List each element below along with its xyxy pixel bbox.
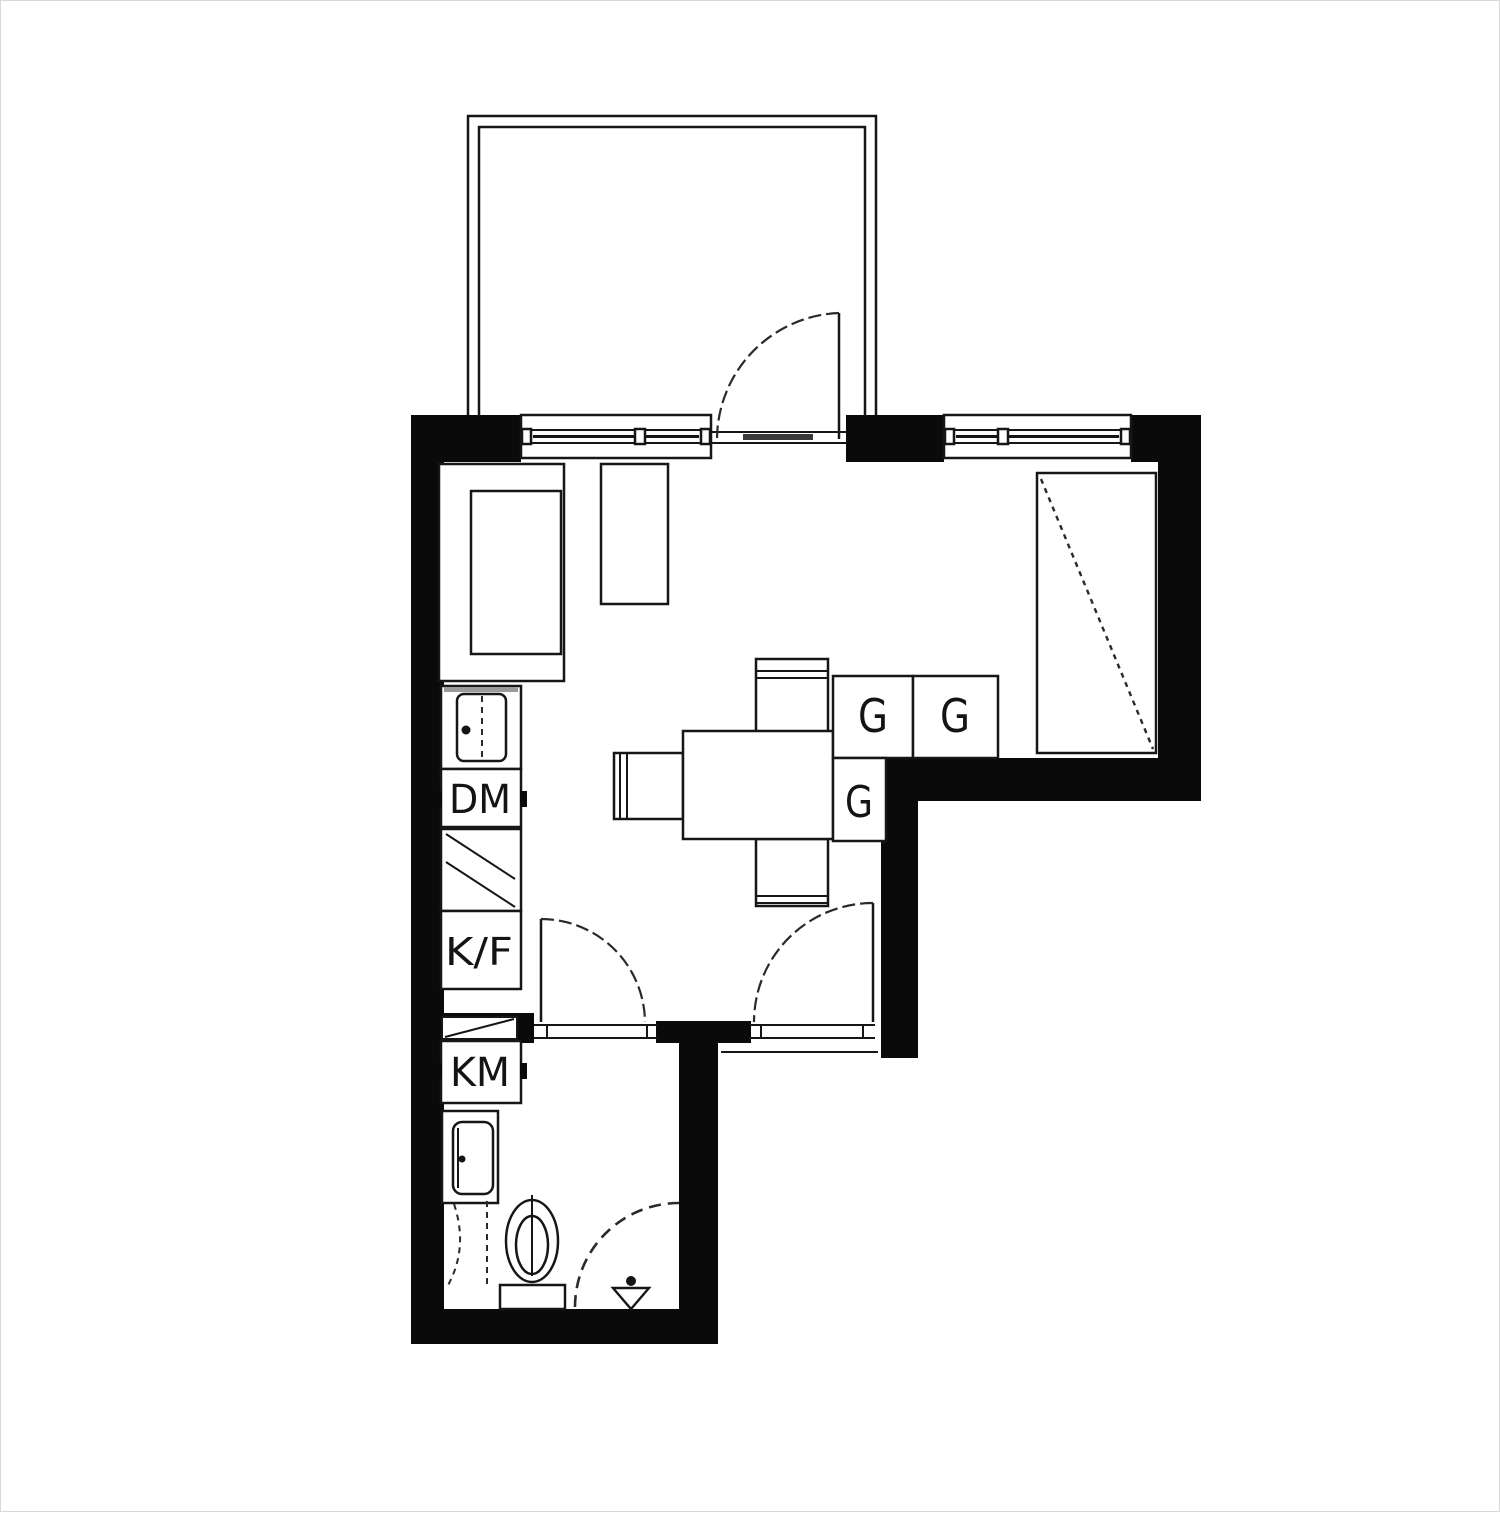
desk xyxy=(601,464,668,604)
clearance-arc xyxy=(447,1204,460,1287)
wall-bedroom-bottom xyxy=(881,758,1201,801)
bed xyxy=(1037,473,1156,753)
washing-machine-tab-left xyxy=(435,1063,442,1079)
wardrobe-g3-label: G xyxy=(845,777,873,828)
wardrobe-g1-label: G xyxy=(858,689,888,743)
bathroom-door-swing xyxy=(541,919,645,1022)
sink-drain-dot xyxy=(459,1156,466,1163)
wardrobe-g2-label: G xyxy=(940,689,970,743)
washing-machine-tab-right xyxy=(520,1063,527,1079)
dishwasher-tab-right xyxy=(520,791,527,807)
stove-unit-top-strip xyxy=(444,687,518,692)
wall-bathroom-bottom xyxy=(411,1309,718,1344)
window-right xyxy=(944,415,1131,458)
balcony-door-swing xyxy=(717,313,839,438)
window-right-mullion xyxy=(998,429,1008,444)
counter-outline xyxy=(441,829,521,911)
window-right-post xyxy=(1121,429,1130,444)
balcony-door-threshold xyxy=(743,434,813,440)
stove-unit xyxy=(441,686,521,769)
entrance-door-swing xyxy=(754,903,873,1022)
fridge-freezer-label: K/F xyxy=(445,930,513,974)
fridge-freezer: K/F xyxy=(441,911,521,989)
bathroom-door xyxy=(534,919,658,1038)
bathroom-sink xyxy=(442,1111,498,1203)
wall-top-mid-segment xyxy=(846,415,944,462)
balcony xyxy=(468,116,876,417)
shower xyxy=(575,1203,679,1309)
floorplan-page: G G G DM K/F xyxy=(0,0,1500,1512)
window-left-mullion xyxy=(635,429,645,444)
window-left-post xyxy=(701,429,710,444)
washing-machine: KM xyxy=(435,1041,527,1103)
balcony-outer-wall xyxy=(468,116,876,417)
window-left-post xyxy=(522,429,531,444)
chair-left xyxy=(614,753,683,819)
window-left xyxy=(521,415,711,458)
balcony-inner-wall xyxy=(479,127,865,417)
toilet xyxy=(500,1195,565,1309)
chair-top xyxy=(756,659,828,733)
toilet-tank xyxy=(500,1285,565,1309)
counter-unit xyxy=(441,829,521,911)
floor-drain-icon xyxy=(613,1288,649,1309)
kitchen: DM K/F xyxy=(435,686,527,989)
wall-bathroom-right xyxy=(679,1021,718,1344)
dishwasher: DM xyxy=(435,769,527,827)
chair-left-outline xyxy=(614,753,683,819)
balcony-door xyxy=(711,313,846,443)
floorplan-svg: G G G DM K/F xyxy=(1,1,1500,1513)
floor-drain-dot xyxy=(626,1276,636,1286)
dishwasher-tab-left xyxy=(435,791,442,807)
chair-bottom xyxy=(756,839,828,906)
dishwasher-label: DM xyxy=(449,777,511,823)
sofa xyxy=(439,464,564,681)
dining-set xyxy=(614,659,833,906)
wall-right xyxy=(1158,415,1201,801)
stove-knob xyxy=(462,726,471,735)
washing-machine-label: KM xyxy=(450,1050,510,1096)
window-right-post xyxy=(945,429,954,444)
dining-table xyxy=(683,731,833,839)
bathroom: KM xyxy=(435,1041,679,1309)
sofa-seat xyxy=(471,491,561,654)
